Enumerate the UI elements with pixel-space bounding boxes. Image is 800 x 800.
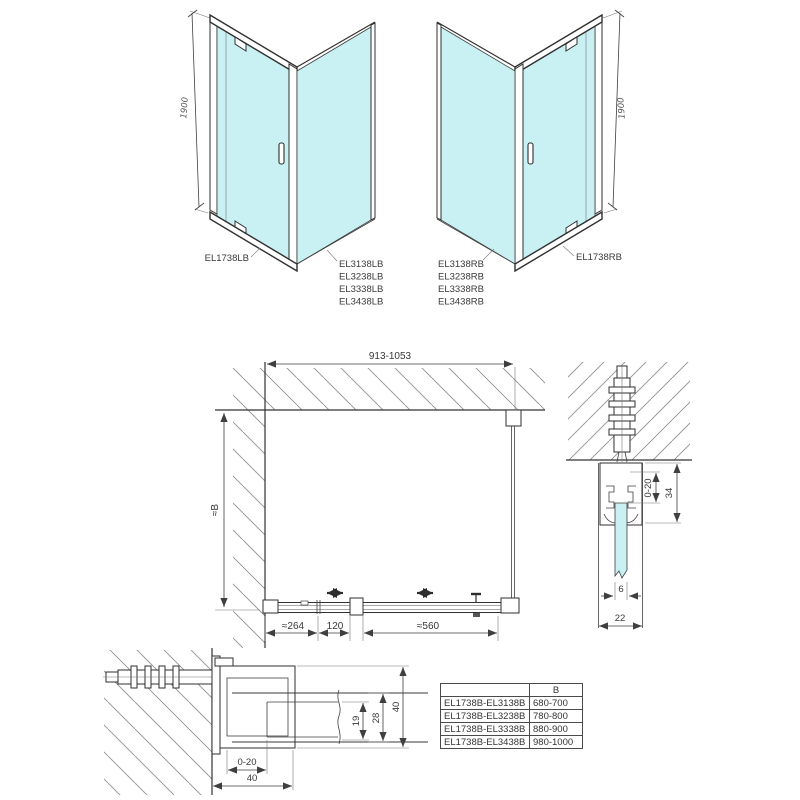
side-edge-profile [437, 23, 441, 220]
height-dimension-left: 1900 [179, 10, 210, 213]
door-stile-block [350, 598, 363, 615]
width-range-text: 913-1053 [369, 351, 412, 362]
model-range-cell: EL1738B-EL3138B [441, 697, 530, 710]
depth-b-text: ≈B [210, 504, 221, 516]
profile-boss [215, 658, 233, 666]
panel-model-label: EL3138RB [438, 259, 484, 270]
roller [301, 601, 308, 605]
table-row: EL1738B-EL3238B 780-800 [441, 710, 583, 723]
depth-dim-text: 34 [664, 488, 675, 499]
b-value-cell: 780-800 [530, 710, 583, 723]
panel-model-label: EL3438RB [438, 297, 484, 308]
door-track [263, 594, 501, 617]
door-opening-dim: ≈560 [417, 621, 440, 632]
frame-depth-dim-text: 28 [371, 713, 382, 724]
wall-profile-strip [595, 16, 602, 214]
model-range-cell: EL1738B-EL3238B [441, 710, 530, 723]
wall-profile-strip [210, 16, 217, 214]
table-row: EL1738B-EL3338B 880-900 [441, 723, 583, 736]
wall-hatch-left [233, 410, 265, 648]
dim-width-22: 22 [599, 613, 642, 626]
panel-model-label: EL3438LB [339, 297, 383, 308]
glass-pane [615, 503, 627, 578]
adjust-dim-text: 0-20 [643, 478, 654, 497]
iso-view-left-version: 1900 EL1738LB EL3138LB EL3238LB EL3338LB… [179, 10, 383, 308]
table-header-row: B [441, 684, 583, 697]
break-line [338, 690, 340, 744]
wall-profile-plan-detail: 19 28 40 0-20 40 [103, 648, 428, 795]
side-glass-panel [297, 27, 371, 264]
panel-model-label: EL3338RB [438, 284, 484, 295]
model-range-cell: EL1738B-EL3338B [441, 723, 530, 736]
dim-profile-40: 40 [297, 666, 409, 748]
table-b-header: B [530, 684, 583, 697]
side-edge-profile [371, 23, 375, 220]
side-glass-panel [441, 27, 515, 264]
profile-wall-plate [212, 656, 220, 754]
width-dim-text: 40 [247, 773, 258, 784]
door-handle [279, 143, 284, 164]
profile-depth-dim-text: 40 [391, 702, 402, 713]
dim-engagement-19: 19 [342, 702, 369, 740]
b-value-cell: 680-700 [530, 697, 583, 710]
engagement-dim-text: 19 [351, 716, 362, 727]
fixed-section-dim: ≈264 [282, 621, 305, 632]
corner-profile-block [501, 598, 519, 613]
leader-panel-labels [327, 250, 337, 261]
leader-door-label [251, 248, 260, 257]
door-handle [528, 143, 533, 164]
profile-width-text: 22 [615, 613, 626, 624]
door-model-label: EL1738RB [576, 252, 622, 263]
adjust-section-dim: 120 [327, 621, 344, 632]
height-dimension-right: 1900 [603, 10, 628, 213]
panel-model-label: EL3338LB [339, 284, 383, 295]
b-value-cell: 880-900 [530, 723, 583, 736]
panel-model-label: EL3238RB [438, 272, 484, 283]
glass-thickness-text: 6 [618, 584, 623, 595]
door-model-label: EL1738LB [205, 253, 249, 264]
height-dim-text-right: 1900 [616, 97, 627, 119]
table-row: EL1738B-EL3438B 980-1000 [441, 736, 583, 749]
adjust-dim-text: 0-20 [237, 757, 256, 768]
side-panel-wall-block [506, 410, 521, 426]
panel-model-label: EL3138LB [339, 259, 383, 270]
drawing-canvas: 1900 EL1738LB EL3138LB EL3238LB EL3338LB… [0, 0, 800, 800]
table-row: EL1738B-EL3138B 680-700 [441, 697, 583, 710]
size-table: B EL1738B-EL3138B 680-700 EL1738B-EL3238… [440, 683, 583, 749]
plan-view: 913-1053 ≈B [210, 351, 545, 648]
plan-handle-foot [473, 613, 480, 617]
leader-door-label [563, 246, 574, 256]
iso-view-right-version: 1900 EL1738RB EL3138RB EL3238RB EL3338RB… [437, 10, 628, 308]
height-dim-text-left: 1900 [179, 97, 190, 119]
b-value-cell: 980-1000 [530, 736, 583, 749]
dim-bottom-chain: ≈264 120 ≈560 [265, 616, 498, 641]
table-corner-cell [441, 684, 530, 697]
panel-model-label: EL3238LB [339, 272, 383, 283]
leader-panel-labels [483, 249, 494, 260]
wall-profile-section-detail: 0-20 34 6 22 [566, 362, 692, 628]
wall-hatch-top [233, 368, 545, 410]
dim-glass-6: 6 [601, 582, 641, 600]
corner-post [515, 64, 523, 268]
model-range-cell: EL1738B-EL3438B [441, 736, 530, 749]
track-wall-block [263, 600, 278, 613]
dim-frame-28: 28 [368, 693, 389, 742]
technical-drawing-page: 1900 EL1738LB EL3138LB EL3238LB EL3338LB… [0, 0, 800, 800]
corner-post [289, 64, 297, 268]
